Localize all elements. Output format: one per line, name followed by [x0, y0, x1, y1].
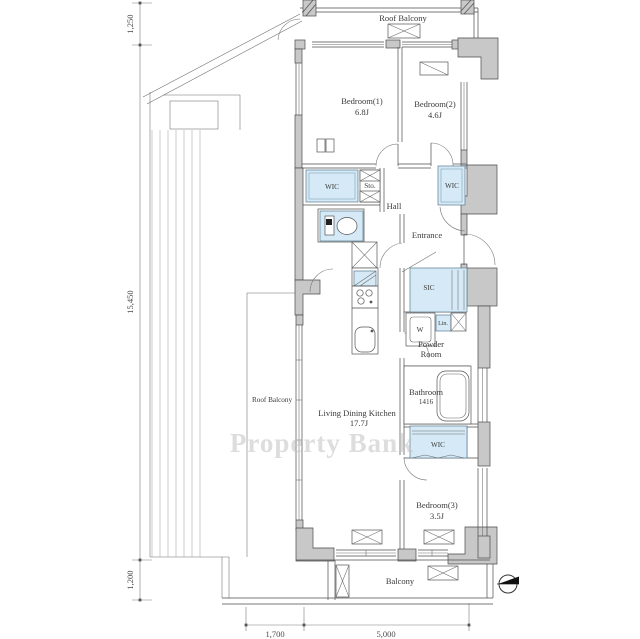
window-bedroom1-left — [296, 63, 302, 115]
window-bedroom3-balcony — [418, 550, 448, 556]
pillar-top-left — [303, 0, 316, 16]
dim-left-top: 1,250 — [125, 14, 135, 33]
label-ldk-size: 17.7J — [350, 418, 369, 428]
label-hall: Hall — [387, 201, 402, 211]
walls — [295, 0, 498, 564]
label-sic: SIC — [423, 284, 434, 292]
label-entrance: Entrance — [412, 230, 442, 240]
shutter-box-top-balcony — [388, 24, 420, 38]
door-bedroom3 — [404, 457, 427, 480]
dim-left-middle: 15,450 — [125, 290, 135, 313]
dim-left-bottom: 1,200 — [125, 570, 135, 589]
label-ldk: Living Dining Kitchen — [318, 408, 396, 418]
door-entrance — [464, 234, 495, 265]
label-bedroom2: Bedroom(2) — [414, 99, 456, 109]
window-bedroom2-right — [461, 82, 467, 150]
label-powder-2: Room — [421, 349, 442, 359]
pillar-duct — [352, 242, 377, 268]
left-roof-structure — [143, 14, 302, 598]
label-bedroom3: Bedroom(3) — [416, 500, 458, 510]
door-bedroom2 — [431, 143, 453, 166]
closet-sic — [410, 268, 467, 312]
label-storage: Sto. — [364, 182, 376, 190]
floor-plan-drawing: 1,250 15,450 1,200 1,700 5,000 Property … — [0, 0, 640, 639]
label-washer: W — [417, 326, 424, 334]
label-wic-right: WIC — [445, 182, 459, 190]
dim-bottom-left: 1,700 — [265, 629, 284, 639]
label-bathroom: Bathroom — [409, 387, 443, 397]
stove-burner — [357, 290, 363, 296]
stove-burner — [358, 298, 364, 304]
door-hall-ldk — [380, 243, 402, 268]
label-bedroom1: Bedroom(1) — [341, 96, 383, 106]
label-wic-bottom: WIC — [431, 441, 445, 449]
kitchen-counter — [352, 268, 378, 354]
evacuation-hatch-balcony — [428, 566, 458, 580]
label-bedroom2-size: 4.6J — [428, 110, 443, 120]
window-bedroom1-top — [312, 42, 384, 47]
furniture-bedroom1 — [317, 139, 334, 152]
label-roof-balcony-top: Roof Balcony — [379, 13, 427, 23]
shutter-box-bedroom3 — [424, 530, 454, 544]
toilet — [320, 211, 363, 241]
label-wic-left: WIC — [325, 183, 339, 191]
floor-plan-canvas: 1,250 15,450 1,200 1,700 5,000 Property … — [0, 0, 640, 639]
label-bedroom1-size: 6.8J — [355, 107, 370, 117]
window-bathroom-right — [478, 368, 487, 422]
closet-box-bedroom2 — [420, 62, 448, 75]
label-powder-1: Powder — [418, 339, 444, 349]
label-roof-balcony-left: Roof Balcony — [252, 396, 293, 404]
dim-bottom-right: 5,000 — [376, 629, 395, 639]
balcony-partition — [336, 565, 349, 597]
watermark: Property Bank — [230, 428, 414, 458]
north-compass-icon — [497, 575, 519, 593]
window-bedroom3-right — [478, 468, 487, 536]
label-linen: Lin. — [438, 321, 448, 327]
shutter-box-ldk — [352, 530, 382, 544]
door-roof-balcony — [278, 19, 300, 40]
label-bedroom3-size: 3.5J — [430, 511, 445, 521]
pillar-top-right — [461, 0, 474, 14]
stove-burner — [366, 290, 372, 296]
label-bathroom-size: 1416 — [419, 398, 434, 406]
fixtures — [306, 24, 471, 597]
door-bedroom1 — [376, 144, 398, 166]
label-balcony: Balcony — [386, 576, 415, 586]
window-ldk-left — [296, 325, 302, 520]
window-ldk-balcony — [336, 550, 396, 556]
window-bedroom2-top — [402, 42, 452, 47]
